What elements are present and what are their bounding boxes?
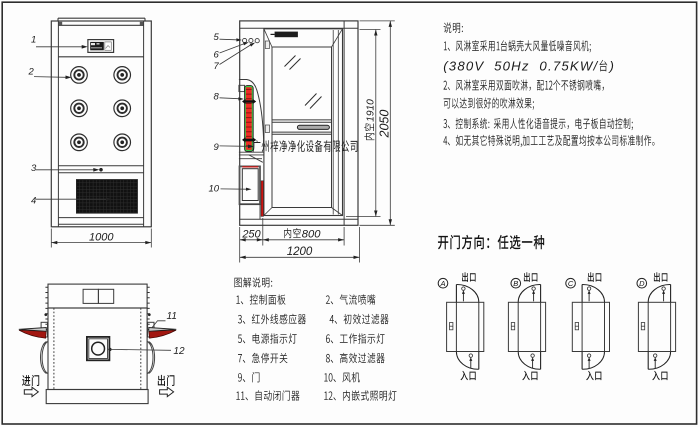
svg-text:8: 8	[214, 92, 220, 103]
svg-text:2050: 2050	[378, 110, 392, 139]
svg-text:B: B	[513, 279, 518, 288]
svg-text:1200: 1200	[287, 246, 313, 258]
svg-text:A: A	[439, 279, 445, 288]
svg-text:1910: 1910	[366, 99, 377, 122]
svg-text:2: 2	[28, 67, 35, 78]
svg-text:12: 12	[173, 346, 185, 357]
svg-text:250: 250	[241, 228, 261, 240]
svg-text:4: 4	[31, 196, 36, 207]
svg-text:D: D	[639, 279, 645, 288]
svg-text:10: 10	[209, 184, 220, 195]
svg-text:3: 3	[31, 163, 37, 174]
svg-text:6: 6	[214, 50, 220, 61]
svg-text:11: 11	[167, 311, 177, 322]
svg-text:9: 9	[214, 142, 220, 153]
svg-text:1000: 1000	[89, 231, 114, 243]
svg-text:1: 1	[31, 35, 36, 46]
svg-text:800: 800	[302, 228, 321, 240]
svg-text:C: C	[568, 279, 574, 288]
svg-text:7: 7	[214, 61, 220, 72]
svg-text:5: 5	[214, 32, 220, 43]
svg-text:(380V 50Hz 0.75KW/: (380V 50Hz 0.75KW/	[443, 58, 598, 73]
